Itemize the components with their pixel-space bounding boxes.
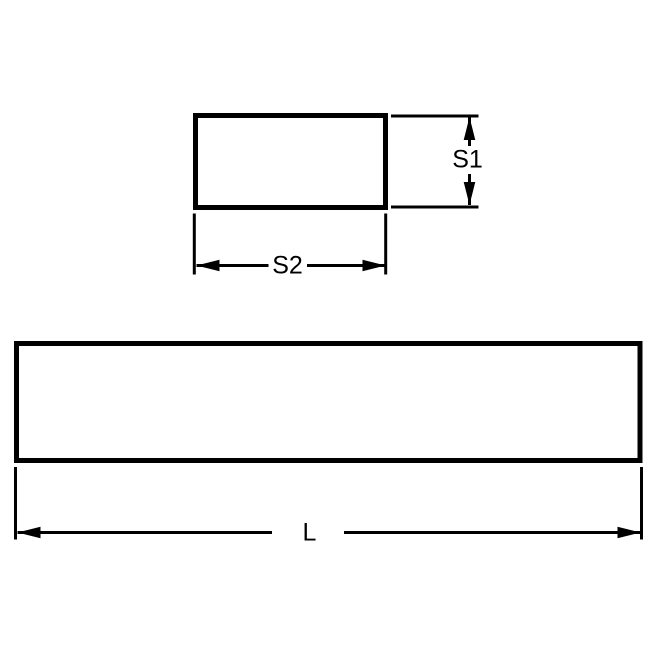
svg-text:L: L [303, 519, 317, 547]
svg-text:S1: S1 [452, 146, 483, 174]
svg-text:S2: S2 [272, 252, 303, 280]
